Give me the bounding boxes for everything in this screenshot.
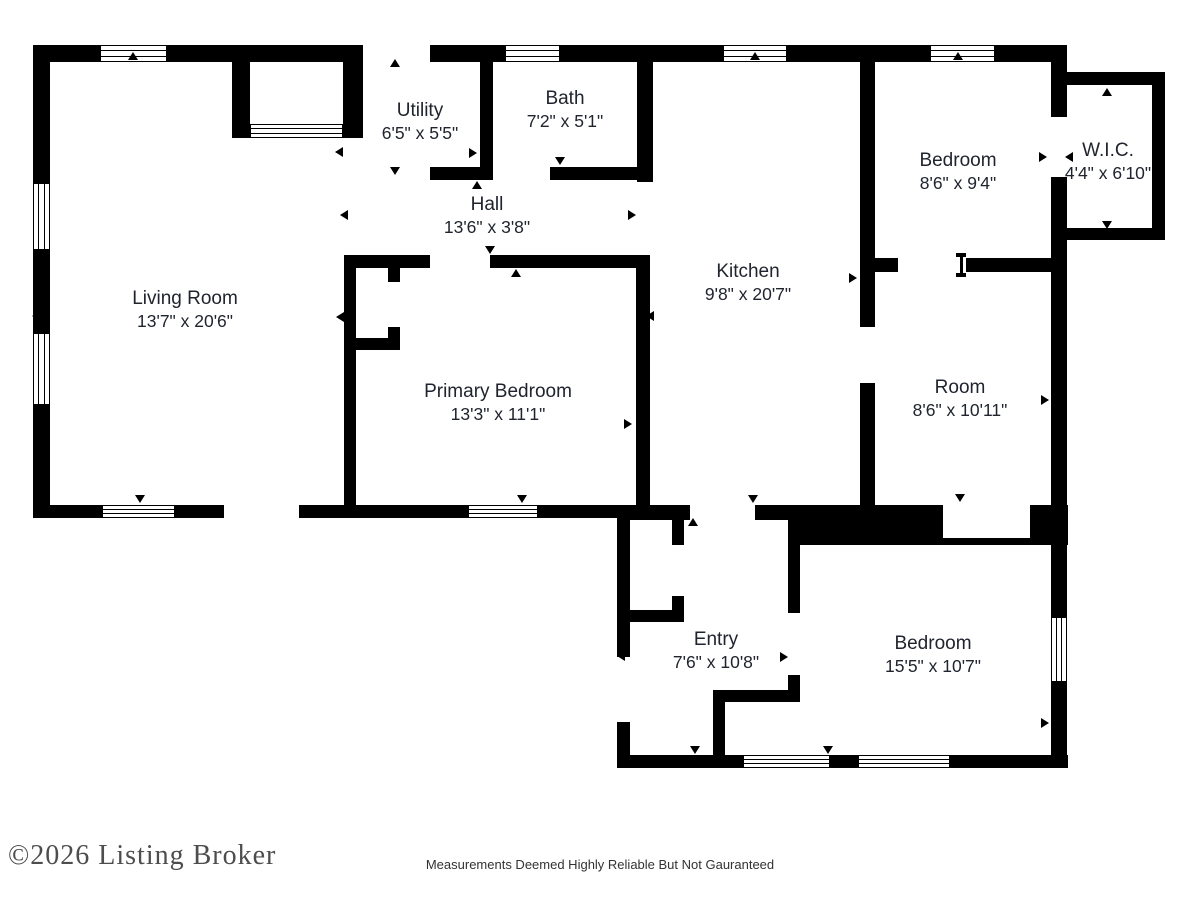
door-arrow-icon: [628, 210, 636, 220]
window: [33, 333, 50, 405]
door-arrow-icon: [32, 311, 40, 321]
door-arrow-icon: [469, 148, 477, 158]
room-dimensions: 13'6" x 3'8": [444, 216, 530, 238]
door-arrow-icon: [340, 210, 348, 220]
wall: [713, 690, 800, 702]
room-dimensions: 15'5" x 10'7": [885, 655, 981, 677]
room-name: Bedroom: [885, 633, 981, 655]
door-arrow-icon: [336, 312, 344, 322]
wall: [860, 62, 875, 327]
wall: [966, 258, 1053, 272]
wall: [33, 45, 363, 62]
wall: [636, 255, 650, 505]
wall: [344, 255, 356, 518]
door-arrow-icon: [849, 273, 857, 283]
wall: [630, 505, 690, 520]
room-label-living-room: Living Room13'7" x 20'6": [132, 288, 238, 332]
room-label-wic: W.I.C.4'4" x 6'10": [1065, 140, 1151, 184]
door-arrow-icon: [390, 167, 400, 175]
door-arrow-icon: [511, 269, 521, 277]
wall: [388, 268, 400, 282]
room-label-primary-bedroom: Primary Bedroom13'3" x 11'1": [424, 381, 572, 425]
room-label-utility: Utility6'5" x 5'5": [382, 100, 459, 144]
closet-opening: [943, 505, 1030, 538]
room-dimensions: 9'8" x 20'7": [705, 283, 791, 305]
door-arrow-icon: [1102, 88, 1112, 96]
door-arrow-icon: [472, 181, 482, 189]
room-dimensions: 13'7" x 20'6": [132, 310, 238, 332]
door-arrow-icon: [335, 147, 343, 157]
wall: [344, 255, 430, 268]
door-jamb-icon: [955, 253, 967, 277]
window: [505, 45, 560, 62]
wall: [1152, 72, 1165, 240]
window: [102, 505, 175, 518]
room-name: Bedroom: [919, 150, 996, 172]
floor-plan-page: Living Room13'7" x 20'6"Utility6'5" x 5'…: [0, 0, 1200, 900]
window: [1051, 617, 1067, 682]
room-label-bedroom-bottom: Bedroom15'5" x 10'7": [885, 633, 981, 677]
door-arrow-icon: [823, 746, 833, 754]
room-dimensions: 7'2" x 5'1": [527, 110, 604, 132]
wall: [672, 596, 684, 622]
wall: [713, 702, 725, 768]
room-dimensions: 4'4" x 6'10": [1065, 162, 1151, 184]
room-name: Kitchen: [705, 261, 791, 283]
room-label-room: Room8'6" x 10'11": [913, 377, 1008, 421]
room-dimensions: 13'3" x 11'1": [424, 403, 572, 425]
wall: [755, 505, 788, 520]
door-arrow-icon: [1039, 152, 1047, 162]
wall: [788, 520, 800, 613]
door-arrow-icon: [1041, 718, 1049, 728]
window: [858, 755, 950, 768]
door-arrow-icon: [646, 311, 654, 321]
disclaimer-text: Measurements Deemed Highly Reliable But …: [0, 857, 1200, 872]
room-name: Utility: [382, 100, 459, 122]
door-arrow-icon: [485, 246, 495, 254]
wall: [637, 62, 653, 182]
door-arrow-icon: [344, 420, 352, 430]
wall: [232, 62, 250, 138]
window: [250, 124, 343, 138]
door-arrow-icon: [750, 52, 760, 60]
door-arrow-icon: [624, 419, 632, 429]
wall: [343, 62, 363, 138]
room-dimensions: 8'6" x 10'11": [913, 399, 1008, 421]
door-arrow-icon: [128, 52, 138, 60]
door-arrow-icon: [690, 746, 700, 754]
room-label-kitchen: Kitchen9'8" x 20'7": [705, 261, 791, 305]
door-arrow-icon: [713, 722, 721, 732]
door-arrow-icon: [617, 651, 625, 661]
room-dimensions: 7'6" x 10'8": [673, 651, 759, 673]
wall: [490, 255, 650, 268]
window: [33, 183, 50, 250]
wall: [430, 167, 493, 180]
wall: [672, 520, 684, 545]
door-arrow-icon: [863, 392, 871, 402]
room-label-bath: Bath7'2" x 5'1": [527, 88, 604, 132]
door-arrow-icon: [517, 495, 527, 503]
room-name: Bath: [527, 88, 604, 110]
room-name: Room: [913, 377, 1008, 399]
room-name: Primary Bedroom: [424, 381, 572, 403]
window: [468, 505, 538, 518]
wall: [550, 167, 653, 180]
wall: [344, 338, 400, 350]
room-dimensions: 6'5" x 5'5": [382, 122, 459, 144]
wall: [1063, 72, 1165, 85]
room-name: Living Room: [132, 288, 238, 310]
door-arrow-icon: [1102, 221, 1112, 229]
room-label-entry: Entry7'6" x 10'8": [673, 629, 759, 673]
wall: [1063, 228, 1165, 240]
door-arrow-icon: [1041, 395, 1049, 405]
door-arrow-icon: [953, 52, 963, 60]
door-arrow-icon: [780, 652, 788, 662]
room-name: W.I.C.: [1065, 140, 1151, 162]
wall: [33, 45, 50, 518]
room-name: Hall: [444, 194, 530, 216]
wall: [617, 505, 630, 657]
door-arrow-icon: [748, 495, 758, 503]
wall: [1051, 177, 1067, 617]
door-arrow-icon: [390, 59, 400, 67]
wall: [617, 755, 1068, 768]
wall: [480, 62, 493, 180]
door-arrow-icon: [688, 518, 698, 526]
door-arrow-icon: [135, 495, 145, 503]
door-arrow-icon: [555, 157, 565, 165]
room-label-bedroom-top: Bedroom8'6" x 9'4": [919, 150, 996, 194]
room-label-hall: Hall13'6" x 3'8": [444, 194, 530, 238]
wall: [860, 258, 898, 272]
door-arrow-icon: [955, 494, 965, 502]
room-dimensions: 8'6" x 9'4": [919, 172, 996, 194]
window: [743, 755, 830, 768]
floor-plan: Living Room13'7" x 20'6"Utility6'5" x 5'…: [0, 0, 1200, 810]
room-name: Entry: [673, 629, 759, 651]
door-arrow-icon: [861, 152, 869, 162]
